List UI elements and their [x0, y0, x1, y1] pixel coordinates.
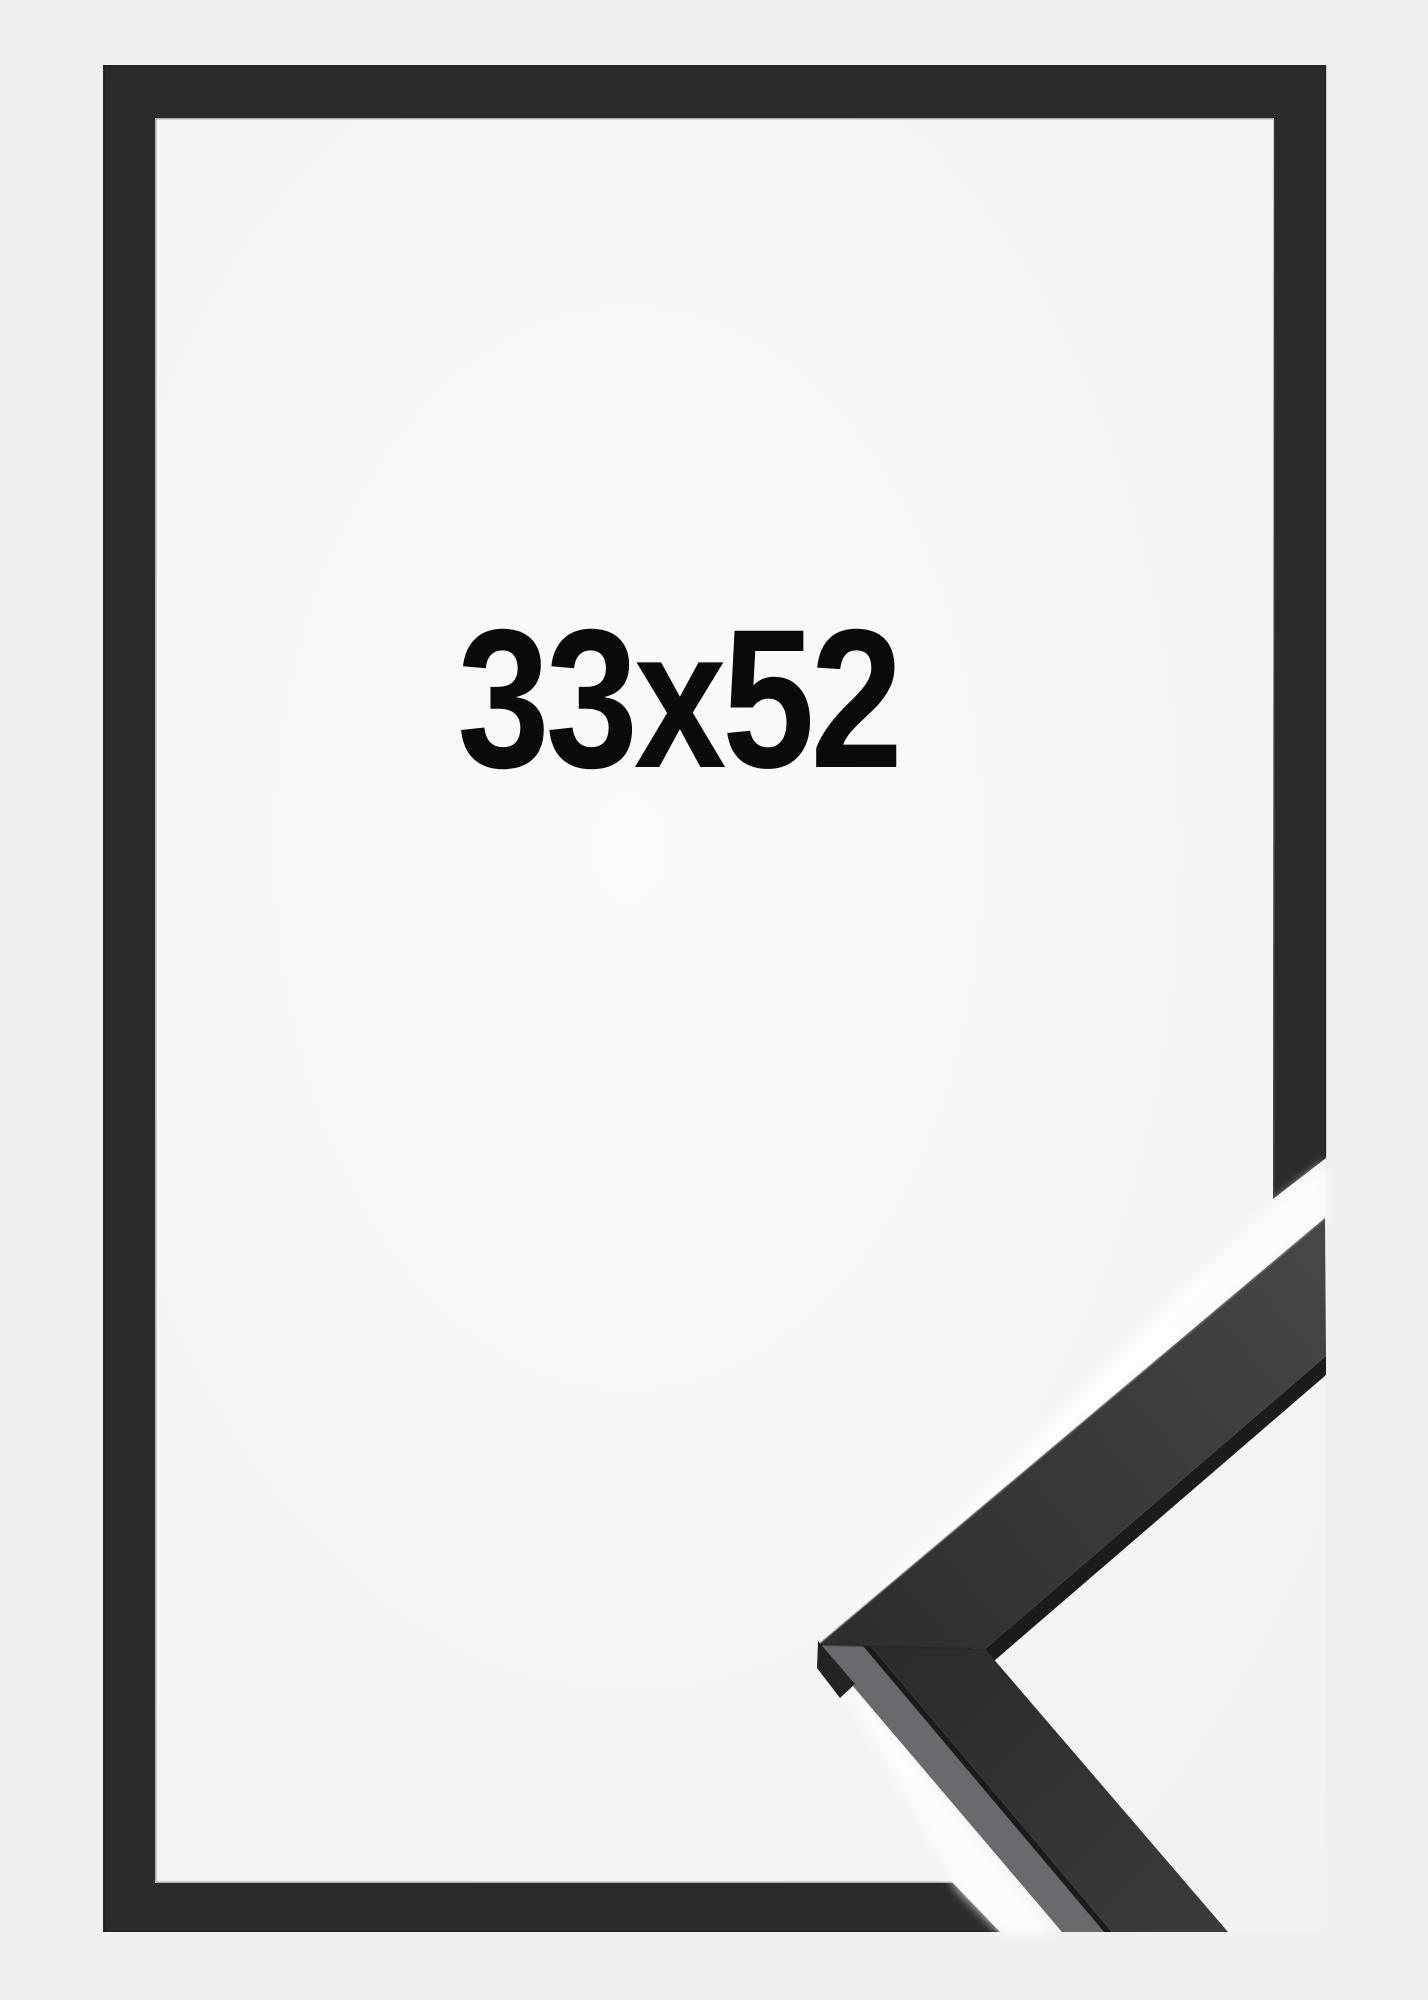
photo-area [103, 65, 1326, 1932]
product-photo: 33x52 [0, 0, 1428, 2000]
frame-left-bar [103, 65, 155, 1932]
frame-bottom-bar [103, 1883, 1000, 1932]
frame-top-bar [103, 65, 1326, 118]
frame-right-bar [1273, 65, 1326, 1199]
size-label: 33x52 [457, 587, 898, 809]
